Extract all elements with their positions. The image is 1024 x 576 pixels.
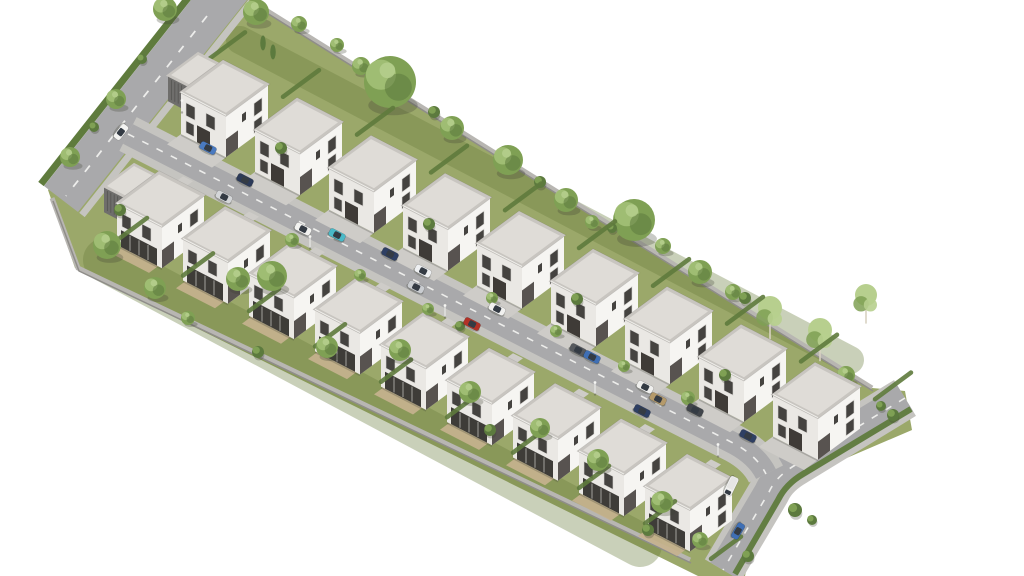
bush-highlight xyxy=(743,551,750,558)
cypress-tree xyxy=(270,45,276,60)
tree-canopy-glint xyxy=(622,362,626,366)
tree xyxy=(153,0,179,24)
birch-canopy xyxy=(768,312,782,326)
bush-highlight xyxy=(888,410,895,417)
tree-canopy-glint xyxy=(160,0,167,7)
tree-canopy-glint xyxy=(695,263,702,270)
tree-canopy-glint xyxy=(185,313,189,317)
tree-canopy-glint xyxy=(502,149,511,158)
tree xyxy=(807,515,818,527)
tree xyxy=(613,199,657,247)
tree-canopy-glint xyxy=(289,235,293,239)
bush-highlight xyxy=(138,55,144,61)
tree-canopy-glint xyxy=(466,384,473,391)
tree-canopy-glint xyxy=(490,294,494,298)
bush-highlight xyxy=(740,293,747,300)
bush-highlight xyxy=(90,123,96,129)
tree xyxy=(440,116,466,143)
tree-canopy-glint xyxy=(685,393,689,397)
bush-highlight xyxy=(643,525,650,532)
bush-highlight xyxy=(115,205,122,212)
cypress-tree xyxy=(260,36,266,51)
tree-canopy-glint xyxy=(554,327,558,331)
bush-highlight xyxy=(456,322,462,328)
bush-highlight xyxy=(253,347,260,354)
lamp-base xyxy=(444,316,446,318)
tree-canopy-glint xyxy=(697,534,702,539)
tree-canopy-glint xyxy=(561,191,568,198)
tree-canopy-glint xyxy=(296,18,301,23)
tree xyxy=(853,284,877,324)
tree-canopy-glint xyxy=(536,421,542,427)
tree-canopy-glint xyxy=(334,40,338,44)
tree-canopy-glint xyxy=(66,150,72,156)
lamp-head xyxy=(594,381,597,384)
tree-canopy-glint xyxy=(266,265,275,274)
tree-canopy-glint xyxy=(357,59,362,64)
tree xyxy=(270,45,276,60)
tree-canopy-glint xyxy=(396,342,403,349)
tree xyxy=(243,0,271,29)
tree-canopy-glint xyxy=(660,240,665,245)
bush-highlight xyxy=(429,107,436,114)
tree-canopy-glint xyxy=(594,452,601,459)
lamp-head xyxy=(181,99,184,102)
lamp-base xyxy=(181,111,183,113)
tree-canopy-glint xyxy=(447,119,454,126)
lamp-head xyxy=(444,304,447,307)
tree-canopy-glint xyxy=(101,235,109,243)
bush-highlight xyxy=(485,425,492,432)
lamp-base xyxy=(717,455,719,457)
bush-highlight xyxy=(877,402,883,408)
bush-highlight xyxy=(808,516,814,522)
tree xyxy=(788,503,802,520)
bush-highlight xyxy=(276,143,283,150)
tree xyxy=(493,145,525,179)
tree-canopy-glint xyxy=(358,271,362,275)
lamp-head xyxy=(717,443,720,446)
tree xyxy=(554,188,580,215)
tree-canopy-glint xyxy=(323,339,330,346)
bush-highlight xyxy=(789,504,797,512)
isometric-site-plan xyxy=(0,0,1024,576)
tree-canopy-glint xyxy=(426,305,430,309)
lamp-base xyxy=(594,393,596,395)
tree xyxy=(260,36,266,51)
tree-canopy-glint xyxy=(842,368,847,373)
tree-canopy-glint xyxy=(112,92,118,98)
bush-highlight xyxy=(572,294,579,301)
tree-canopy-glint xyxy=(658,494,665,501)
birch-canopy xyxy=(864,298,877,311)
tree-canopy-glint xyxy=(380,63,396,79)
tree-canopy-glint xyxy=(233,270,240,277)
tree xyxy=(364,56,418,115)
tree-canopy-glint xyxy=(589,217,593,221)
lamp-head xyxy=(309,235,312,238)
tree xyxy=(688,260,714,287)
lamp-base xyxy=(309,247,311,249)
housing-development-render xyxy=(0,0,1024,576)
tree-canopy-glint xyxy=(730,286,735,291)
tree-canopy-glint xyxy=(626,204,639,217)
tree-canopy-glint xyxy=(251,2,259,10)
bush-highlight xyxy=(424,219,431,226)
tree-canopy-glint xyxy=(151,280,158,287)
bush-highlight xyxy=(720,370,727,377)
